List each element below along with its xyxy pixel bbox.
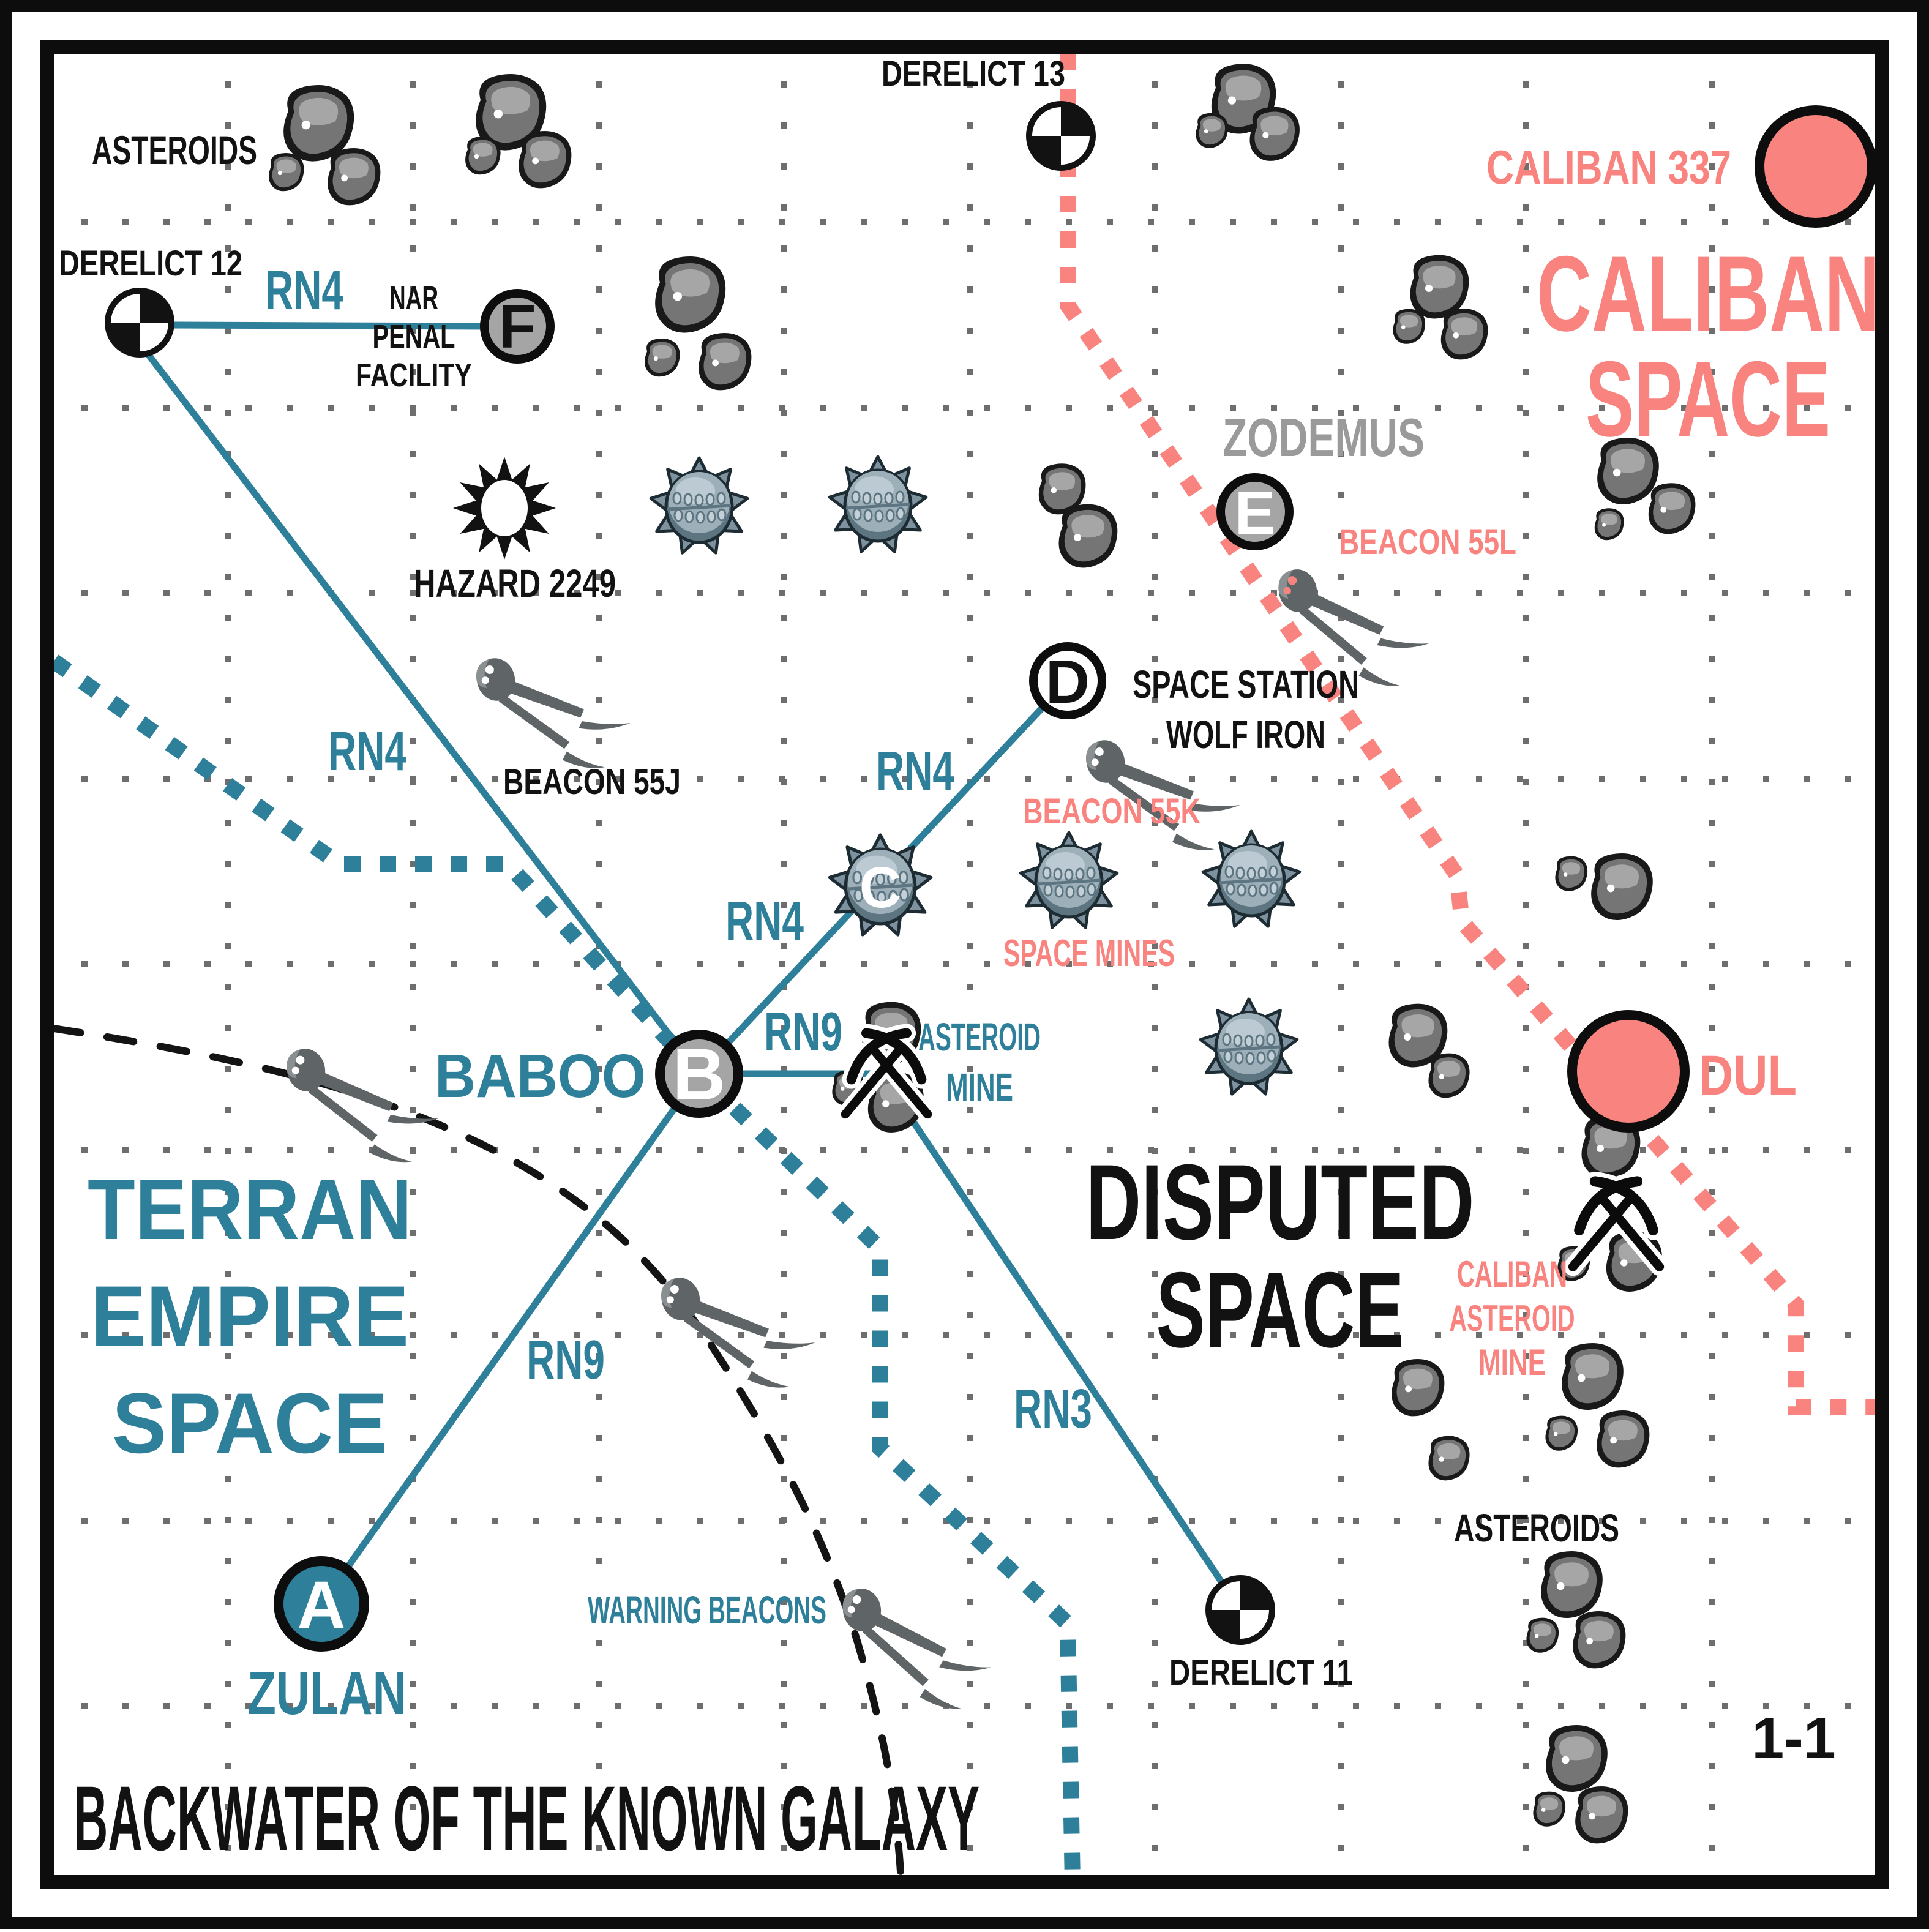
disputed-region-title: DISPUTED SPACE bbox=[1086, 1143, 1475, 1370]
system-b-letter: B bbox=[673, 1033, 726, 1115]
planet-caliban-337[interactable] bbox=[1759, 110, 1872, 223]
route-rn4-derelict12-baboo[interactable] bbox=[149, 355, 699, 1074]
terran-line-2: EMPIRE bbox=[91, 1268, 409, 1364]
route-rn9-label: RN9 bbox=[526, 1330, 605, 1391]
system-a-letter: A bbox=[297, 1568, 345, 1643]
nar-penal-facility-line-1: NAR bbox=[389, 280, 438, 316]
asteroid-icon bbox=[655, 256, 725, 333]
map-canvas: TERRAN EMPIRE SPACE DISPUTED SPACE CALIB… bbox=[0, 0, 1929, 1929]
asteroid-icon bbox=[1591, 853, 1653, 920]
map-footer-title: BACKWATER OF THE KNOWN GALAXY bbox=[73, 1767, 979, 1870]
asteroid-icon bbox=[269, 153, 304, 191]
caliban-asteroid-mine-label-line-2: ASTEROID bbox=[1450, 1298, 1575, 1339]
terran-region-title: TERRAN EMPIRE SPACE bbox=[88, 1161, 412, 1471]
asteroid-mine-label-line-1: ASTEROID bbox=[918, 1015, 1041, 1059]
space-mine-icon[interactable] bbox=[1021, 833, 1117, 927]
space-mine-icon[interactable] bbox=[830, 457, 926, 552]
caliban-asteroid-mine-label-line-1: CALIBAN bbox=[1457, 1254, 1567, 1295]
asteroid-icon bbox=[1555, 856, 1587, 891]
route-rn9-label: RN9 bbox=[764, 1002, 842, 1063]
system-d-letter: D bbox=[1046, 648, 1090, 716]
asteroid-icon bbox=[1428, 1436, 1469, 1481]
asteroid-mine-label-line-2: MINE bbox=[946, 1065, 1013, 1109]
asteroid-icon bbox=[1428, 1054, 1469, 1098]
system-f-letter: F bbox=[498, 293, 536, 361]
beacon-55j-label: BEACON 55J bbox=[503, 762, 681, 802]
caliban-asteroid-mine-label-line-3: MINE bbox=[1478, 1342, 1546, 1383]
route-rn4-label: RN4 bbox=[876, 741, 954, 802]
hazard-icon[interactable] bbox=[453, 457, 556, 560]
route-rn4-label: RN4 bbox=[725, 891, 804, 952]
beacon-55l-label: BEACON 55L bbox=[1339, 522, 1516, 562]
terran-line-3: SPACE bbox=[112, 1375, 388, 1471]
asteroid-icon bbox=[1196, 113, 1228, 148]
system-e-letter: E bbox=[1235, 479, 1276, 547]
asteroid-icon bbox=[1526, 1618, 1559, 1653]
asteroids-label-top-left: ASTEROIDS bbox=[92, 127, 257, 173]
system-b-name-label: BABOO bbox=[435, 1042, 646, 1110]
page-marker: 1-1 bbox=[1751, 1706, 1835, 1771]
derelict-12-icon[interactable] bbox=[108, 291, 171, 354]
derelict-12-label: DERELICT 12 bbox=[59, 244, 242, 283]
space-mine-icon[interactable] bbox=[1200, 999, 1297, 1094]
beacon-55k-label: BEACON 55K bbox=[1023, 792, 1200, 831]
asteroid-icon bbox=[1597, 438, 1659, 504]
asteroid-icon bbox=[1649, 483, 1696, 534]
system-a-name-label: ZULAN bbox=[247, 1659, 406, 1728]
asteroid-icon bbox=[1595, 508, 1624, 540]
space-mine-icon[interactable] bbox=[1203, 831, 1300, 926]
nar-penal-facility-line-3: FACILITY bbox=[356, 357, 472, 394]
space-mine-icon[interactable] bbox=[651, 458, 747, 553]
asteroid-icon bbox=[328, 148, 380, 205]
derelict-13-label: DERELICT 13 bbox=[882, 54, 1065, 94]
asteroid-icon bbox=[1541, 1551, 1603, 1618]
asteroid-icon bbox=[465, 137, 501, 174]
system-c-letter: C bbox=[860, 855, 902, 920]
asteroids-label-bottom-right: ASTEROIDS bbox=[1454, 1506, 1619, 1550]
asteroid-icon bbox=[1573, 1611, 1625, 1668]
system-e-name-label: ZODEMUS bbox=[1223, 407, 1425, 468]
asteroid-icon bbox=[1546, 1725, 1608, 1792]
asteroid-icon bbox=[1562, 1343, 1624, 1410]
terran-line-1: TERRAN bbox=[88, 1161, 412, 1257]
derelict-11-icon[interactable] bbox=[1208, 1578, 1272, 1642]
asteroid-icon bbox=[1058, 504, 1117, 568]
planet-dul-label: DUL bbox=[1699, 1044, 1797, 1107]
asteroid-icon bbox=[699, 333, 751, 390]
disputed-line-1: DISPUTED bbox=[1086, 1143, 1475, 1262]
planet-caliban-337-label: CALIBAN 337 bbox=[1486, 140, 1731, 194]
derelict-13-icon[interactable] bbox=[1029, 104, 1093, 168]
asteroid-icon bbox=[1392, 1359, 1444, 1416]
space-mines-label: SPACE MINES bbox=[1003, 932, 1175, 975]
asteroid-icon bbox=[1575, 1786, 1628, 1843]
asteroid-icon bbox=[1393, 309, 1425, 344]
route-rn4-label: RN4 bbox=[328, 721, 406, 782]
star-map: TERRAN EMPIRE SPACE DISPUTED SPACE CALIB… bbox=[0, 0, 1929, 1929]
caliban-line-1: CALIBAN bbox=[1537, 234, 1879, 354]
warning-beacons-label: WARNING BEACONS bbox=[588, 1588, 826, 1632]
warning-beacon-icon[interactable] bbox=[840, 1572, 996, 1723]
hazard-2249-label: HAZARD 2249 bbox=[414, 561, 616, 605]
planet-dul[interactable] bbox=[1572, 1015, 1685, 1128]
nar-penal-facility-line-2: PENAL bbox=[373, 318, 455, 355]
warning-beacon-icon[interactable] bbox=[283, 1024, 446, 1183]
route-rn3-label: RN3 bbox=[1014, 1379, 1092, 1440]
asteroid-icon bbox=[1545, 1416, 1578, 1451]
asteroid-icon bbox=[645, 339, 680, 376]
wolf-iron-label-line-1: SPACE STATION bbox=[1133, 662, 1359, 706]
wolf-iron-label-line-2: WOLF IRON bbox=[1166, 713, 1325, 757]
asteroid-icon bbox=[1533, 1792, 1565, 1827]
caliban-region-title: CALIBAN SPACE bbox=[1537, 234, 1879, 459]
asteroid-icon bbox=[1441, 309, 1488, 359]
asteroid-icon bbox=[1597, 1410, 1649, 1467]
derelict-11-label: DERELICT 11 bbox=[1169, 1653, 1353, 1693]
asteroid-icon bbox=[519, 131, 571, 188]
asteroid-icon bbox=[1249, 107, 1299, 161]
route-rn4-label: RN4 bbox=[265, 260, 343, 321]
disputed-line-2: SPACE bbox=[1156, 1251, 1404, 1370]
